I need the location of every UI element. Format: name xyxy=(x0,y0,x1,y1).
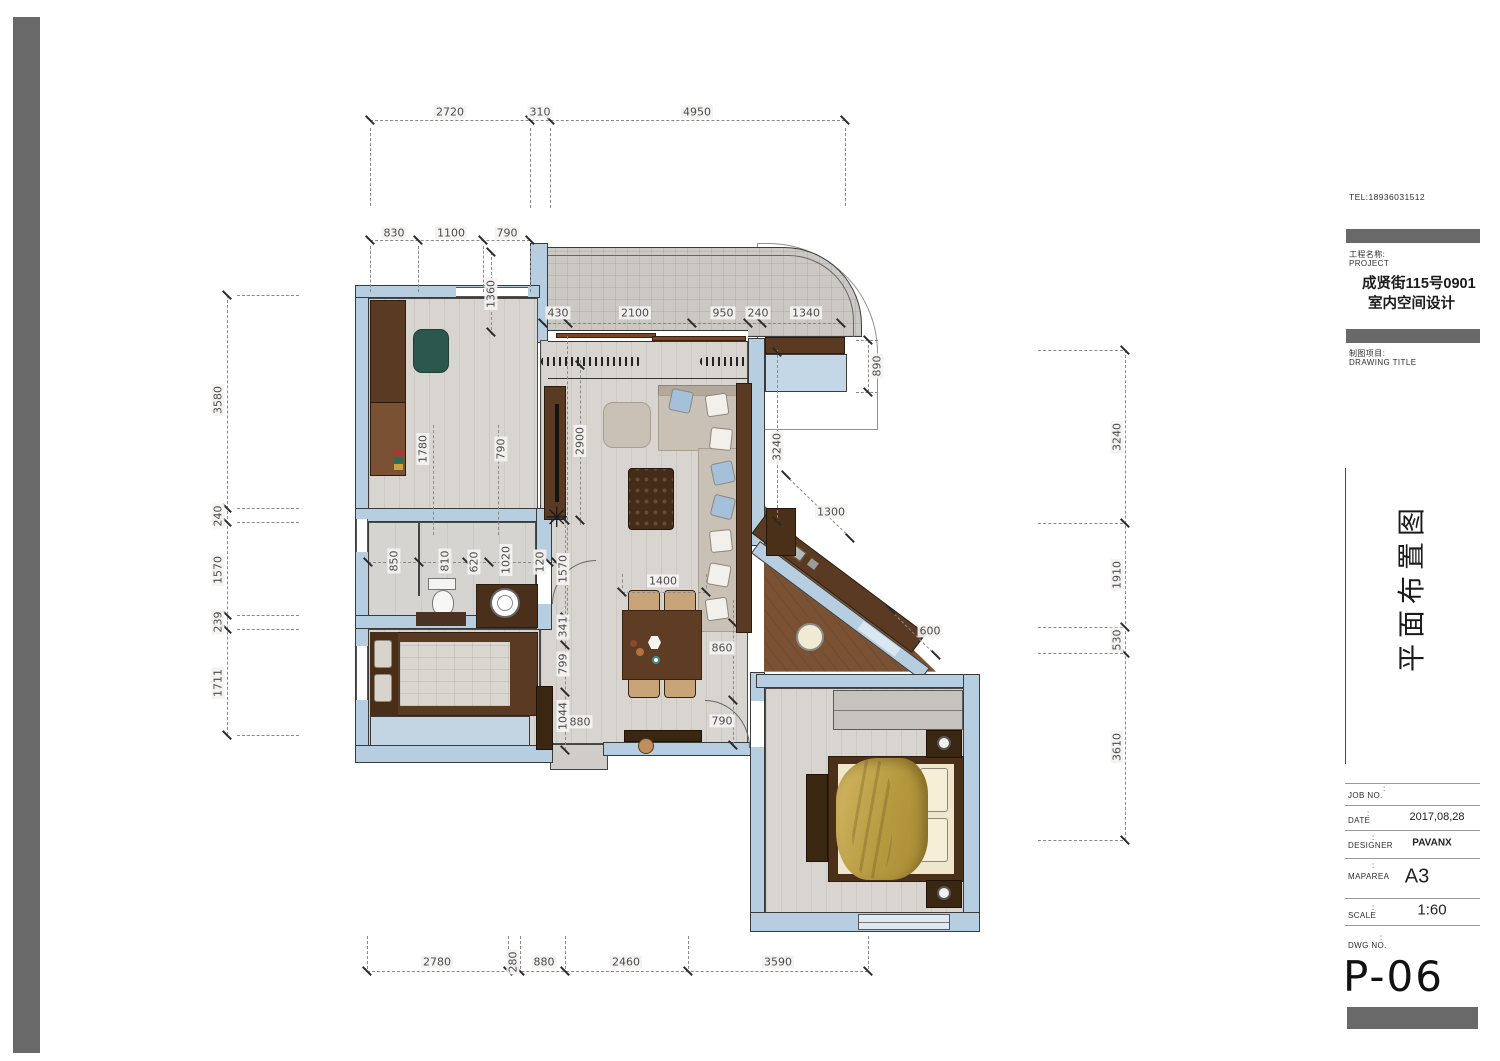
bedroom2-bottom-wall xyxy=(355,745,553,763)
dim-ext xyxy=(530,246,531,292)
dim-label: 280 xyxy=(506,950,519,975)
dim-line xyxy=(370,240,530,241)
dim-ext xyxy=(367,936,368,969)
hall-console xyxy=(624,730,702,742)
field-colon: : xyxy=(1383,784,1386,793)
dim-label: 1570 xyxy=(211,554,224,586)
dim-ext xyxy=(237,615,299,616)
field-label-dwg-no: DWG NO. xyxy=(1348,941,1387,950)
curtain-left xyxy=(541,357,641,366)
sofa-pillow xyxy=(710,460,736,486)
kitchen-cabinet xyxy=(766,508,796,556)
dim-ext xyxy=(550,128,551,208)
blanket-folds xyxy=(852,760,892,878)
title-bar-divider xyxy=(1347,1007,1478,1029)
dim-label: 799 xyxy=(556,652,569,677)
dim-ext xyxy=(1038,523,1123,524)
bathroom-window xyxy=(356,519,368,552)
dim-label: 1340 xyxy=(790,306,822,319)
dim-line xyxy=(370,120,845,121)
dim-label: 620 xyxy=(467,550,480,575)
dim-line xyxy=(1125,350,1126,840)
dim-label: 341 xyxy=(556,615,569,640)
field-label-maparea: MAPAREA xyxy=(1348,872,1389,881)
dim-ext xyxy=(868,936,869,969)
dim-ext xyxy=(370,128,371,206)
dim-label: 600 xyxy=(918,624,943,637)
title-rule xyxy=(1345,898,1480,899)
dim-label: 1780 xyxy=(416,433,429,465)
dim-label: 790 xyxy=(710,714,735,727)
title-rule xyxy=(1345,783,1480,784)
field-colon: : xyxy=(1372,903,1375,912)
dim-ext xyxy=(1038,840,1123,841)
dim-label: 310 xyxy=(528,105,553,118)
sofa-pillow xyxy=(709,427,733,451)
dim-label: 1400 xyxy=(647,574,679,587)
dim-tick xyxy=(931,650,941,660)
project-subtitle: 室内空间设计 xyxy=(1368,292,1455,313)
title-rule xyxy=(1345,830,1480,831)
dim-label: 2460 xyxy=(610,955,642,968)
bathroom-top-wall xyxy=(355,508,540,522)
dim-label: 239 xyxy=(211,610,224,635)
project-name: 成贤街115号0901 xyxy=(1362,272,1476,293)
dim-label: 810 xyxy=(438,549,451,574)
kitchen-pendant-table xyxy=(796,623,824,651)
dim-label: 1360 xyxy=(484,278,497,310)
dim-ext xyxy=(433,425,434,535)
field-colon: : xyxy=(1372,861,1375,870)
tel-text: TEL:18936031512 xyxy=(1349,192,1425,202)
sofa-pillow xyxy=(668,388,694,414)
bedside-lamp xyxy=(937,736,951,750)
bed2-pillow xyxy=(374,640,392,668)
dim-line xyxy=(367,971,868,972)
dim-line xyxy=(622,592,706,593)
dim-ext xyxy=(237,629,299,630)
dim-label: 1300 xyxy=(815,505,847,518)
ottoman xyxy=(603,402,651,448)
dim-label: 880 xyxy=(532,955,557,968)
dim-label: 3580 xyxy=(211,384,224,416)
dim-label: 1910 xyxy=(1110,559,1123,591)
title-block-border-line xyxy=(1345,468,1346,764)
title-bar-divider xyxy=(1346,229,1480,243)
curtain-right xyxy=(700,357,748,366)
tv-screen xyxy=(555,404,559,502)
dim-ext xyxy=(845,128,846,206)
drawing-title-vertical: 平面布置图 xyxy=(1395,502,1429,672)
title-rule xyxy=(1345,805,1480,806)
dim-label: 830 xyxy=(382,226,407,239)
field-value-date: 2017,08,28 xyxy=(1409,811,1464,823)
study-armchair xyxy=(413,329,449,373)
field-label-job-no: JOB NO. xyxy=(1348,791,1383,800)
bed2-pillow xyxy=(374,674,392,702)
master-door-opening xyxy=(751,701,764,747)
table-bowl xyxy=(652,656,660,664)
window-mullion-line xyxy=(859,922,949,923)
dim-label: 880 xyxy=(568,715,593,728)
dim-tick xyxy=(845,533,855,543)
dim-label: 3590 xyxy=(762,955,794,968)
binding-bar xyxy=(13,17,40,1053)
bath-mat xyxy=(416,612,466,626)
shelf-books xyxy=(394,464,403,470)
dim-label: 3610 xyxy=(1110,731,1123,763)
field-label-scale: SCALE xyxy=(1348,911,1376,920)
title-rule xyxy=(1345,925,1480,926)
sofa-side-table xyxy=(736,383,752,633)
dim-ext xyxy=(418,246,419,292)
plant: ✳ xyxy=(545,503,575,533)
round-stool xyxy=(638,738,654,754)
table-plate xyxy=(636,648,644,656)
sofa-pillow xyxy=(705,597,730,622)
title-rule xyxy=(1345,858,1480,859)
coffee-table xyxy=(628,468,674,530)
dim-label: 240 xyxy=(211,504,224,529)
dim-ext xyxy=(530,128,531,208)
bedside-lamp xyxy=(937,886,951,900)
drawing-sheet: ✳ xyxy=(0,0,1500,1061)
dim-label: 1570 xyxy=(556,553,569,585)
sofa-pillow xyxy=(705,393,730,418)
master-window xyxy=(858,914,950,930)
dim-label: 890 xyxy=(870,354,883,379)
bedroom2-window xyxy=(356,646,368,700)
bed2-bench xyxy=(370,716,530,746)
table-plate xyxy=(630,640,637,647)
bed2-mattress xyxy=(400,642,510,706)
project-label-en: PROJECT xyxy=(1349,259,1389,268)
shelf-books xyxy=(394,457,403,463)
balcony-railing-line xyxy=(538,255,854,337)
bedside-bench xyxy=(806,774,828,862)
dim-label: 2720 xyxy=(434,105,466,118)
dim-label: 850 xyxy=(387,549,400,574)
field-label-designer: DESIGNER xyxy=(1348,841,1393,850)
dim-label: 120 xyxy=(533,550,546,575)
dim-line xyxy=(227,295,228,735)
drawing-number: P-06 xyxy=(1343,952,1444,1001)
dim-label: 3240 xyxy=(1110,421,1123,453)
dim-label: 2100 xyxy=(619,306,651,319)
hall-cabinet xyxy=(536,686,553,750)
dim-label: 2900 xyxy=(573,425,586,457)
dim-label: 1711 xyxy=(211,667,224,699)
dim-label: 1020 xyxy=(499,544,512,576)
dim-label: 3240 xyxy=(770,431,783,463)
dim-label: 790 xyxy=(494,437,507,462)
toilet-tank xyxy=(428,578,456,590)
field-colon: : xyxy=(1380,933,1383,942)
field-value-scale: 1:60 xyxy=(1417,902,1446,919)
dim-ext xyxy=(520,936,521,969)
dim-label: 4950 xyxy=(681,105,713,118)
dim-ext xyxy=(1038,350,1123,351)
sofa-pillow xyxy=(706,562,731,587)
entry-porch xyxy=(550,744,608,770)
title-bar-divider xyxy=(1346,329,1480,343)
dim-label: 860 xyxy=(710,641,735,654)
dim-label: 530 xyxy=(1110,628,1123,653)
dim-ext xyxy=(370,246,371,292)
dim-ext xyxy=(237,735,299,736)
dim-ext xyxy=(237,522,299,523)
curtain-rod-line xyxy=(548,378,748,379)
field-colon: : xyxy=(1372,833,1375,842)
dim-ext xyxy=(237,508,299,509)
dim-label: 240 xyxy=(746,306,771,319)
dim-ext xyxy=(1038,653,1123,654)
dim-label: 1100 xyxy=(435,226,467,239)
master-right-wall xyxy=(963,674,980,932)
dim-tick xyxy=(781,470,791,480)
field-value-maparea: A3 xyxy=(1405,866,1429,889)
dim-ext xyxy=(688,936,689,969)
shelf-books xyxy=(394,450,403,456)
dim-ext xyxy=(237,295,299,296)
dim-label: 2780 xyxy=(421,955,453,968)
dim-ext xyxy=(565,936,566,969)
dim-label: 790 xyxy=(495,226,520,239)
sliding-window-panel xyxy=(652,336,746,341)
dim-label: 430 xyxy=(546,306,571,319)
field-colon: : xyxy=(1367,809,1370,818)
wardrobe-door-line xyxy=(834,710,962,711)
master-wardrobe xyxy=(833,690,963,730)
master-top-wall xyxy=(756,674,978,688)
sliding-window-panel xyxy=(556,333,656,338)
dim-line xyxy=(868,340,869,392)
dim-label: 950 xyxy=(711,306,736,319)
kitchen-stove xyxy=(807,558,819,570)
sink-basin-line xyxy=(497,595,513,611)
field-value-designer: PAVANX xyxy=(1412,838,1451,849)
sofa-pillow xyxy=(709,529,733,553)
drawing-label-en: DRAWING TITLE xyxy=(1349,358,1416,367)
